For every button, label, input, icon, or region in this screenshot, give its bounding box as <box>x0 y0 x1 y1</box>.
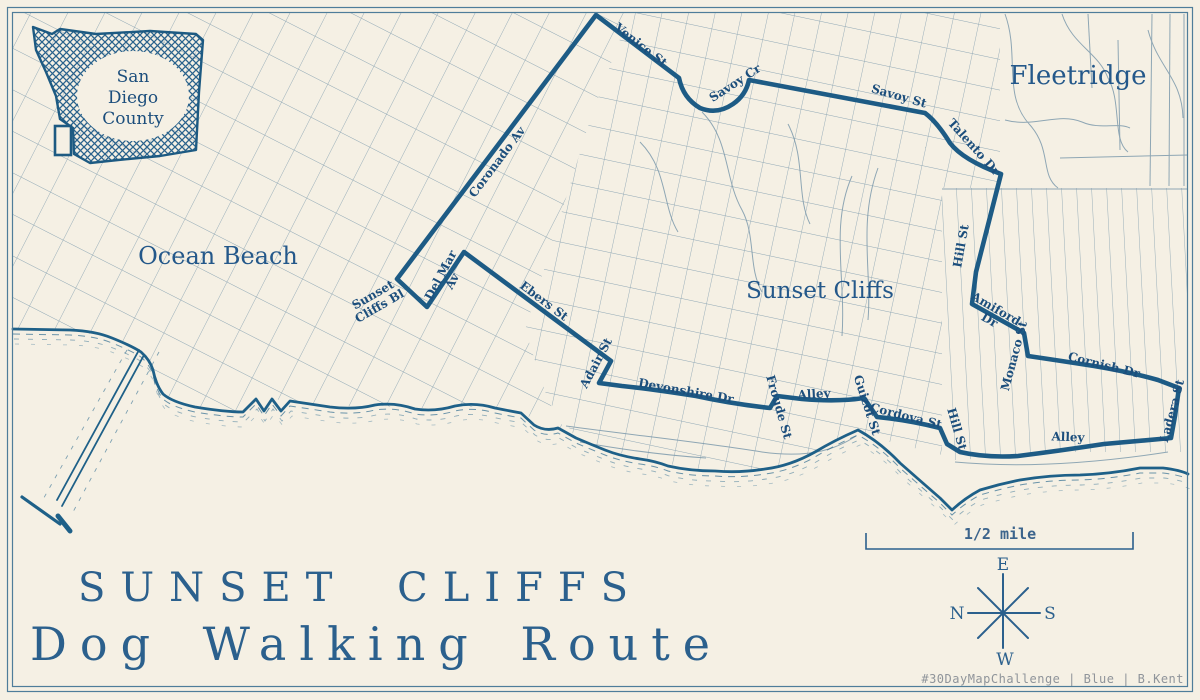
grid-strips-east <box>942 188 1188 460</box>
attribution: #30DayMapChallenge | Blue | B.Kent <box>921 672 1184 686</box>
compass-top: E <box>997 555 1009 575</box>
area-label: Ocean Beach <box>138 242 298 270</box>
inset-label-line2: Diego <box>108 88 158 108</box>
locator-box <box>55 126 71 155</box>
scale-bar: 1/2 mile <box>866 525 1133 549</box>
map-title-line1: SUNSET CLIFFS <box>78 565 643 611</box>
street-label: Alley <box>796 386 832 402</box>
jetty <box>22 350 159 531</box>
compass-left: N <box>950 604 965 624</box>
inset-label-line3: County <box>102 109 164 129</box>
area-label: Fleetridge <box>1010 61 1147 91</box>
compass-rose: E S W N <box>950 555 1056 670</box>
compass-bottom: W <box>996 650 1014 670</box>
scale-label: 1/2 mile <box>964 525 1036 543</box>
inset-label-line1: San <box>117 67 150 87</box>
area-label: Sunset Cliffs <box>746 278 894 304</box>
compass-right: S <box>1044 604 1056 624</box>
map-image: San Diego County Coronado AvVenice StSav… <box>0 0 1200 700</box>
street-label: Alley <box>1050 429 1086 444</box>
map-svg: San Diego County Coronado AvVenice StSav… <box>0 0 1200 700</box>
map-title-line2: Dog Walking Route <box>30 617 723 671</box>
inset-map: San Diego County <box>33 27 203 163</box>
